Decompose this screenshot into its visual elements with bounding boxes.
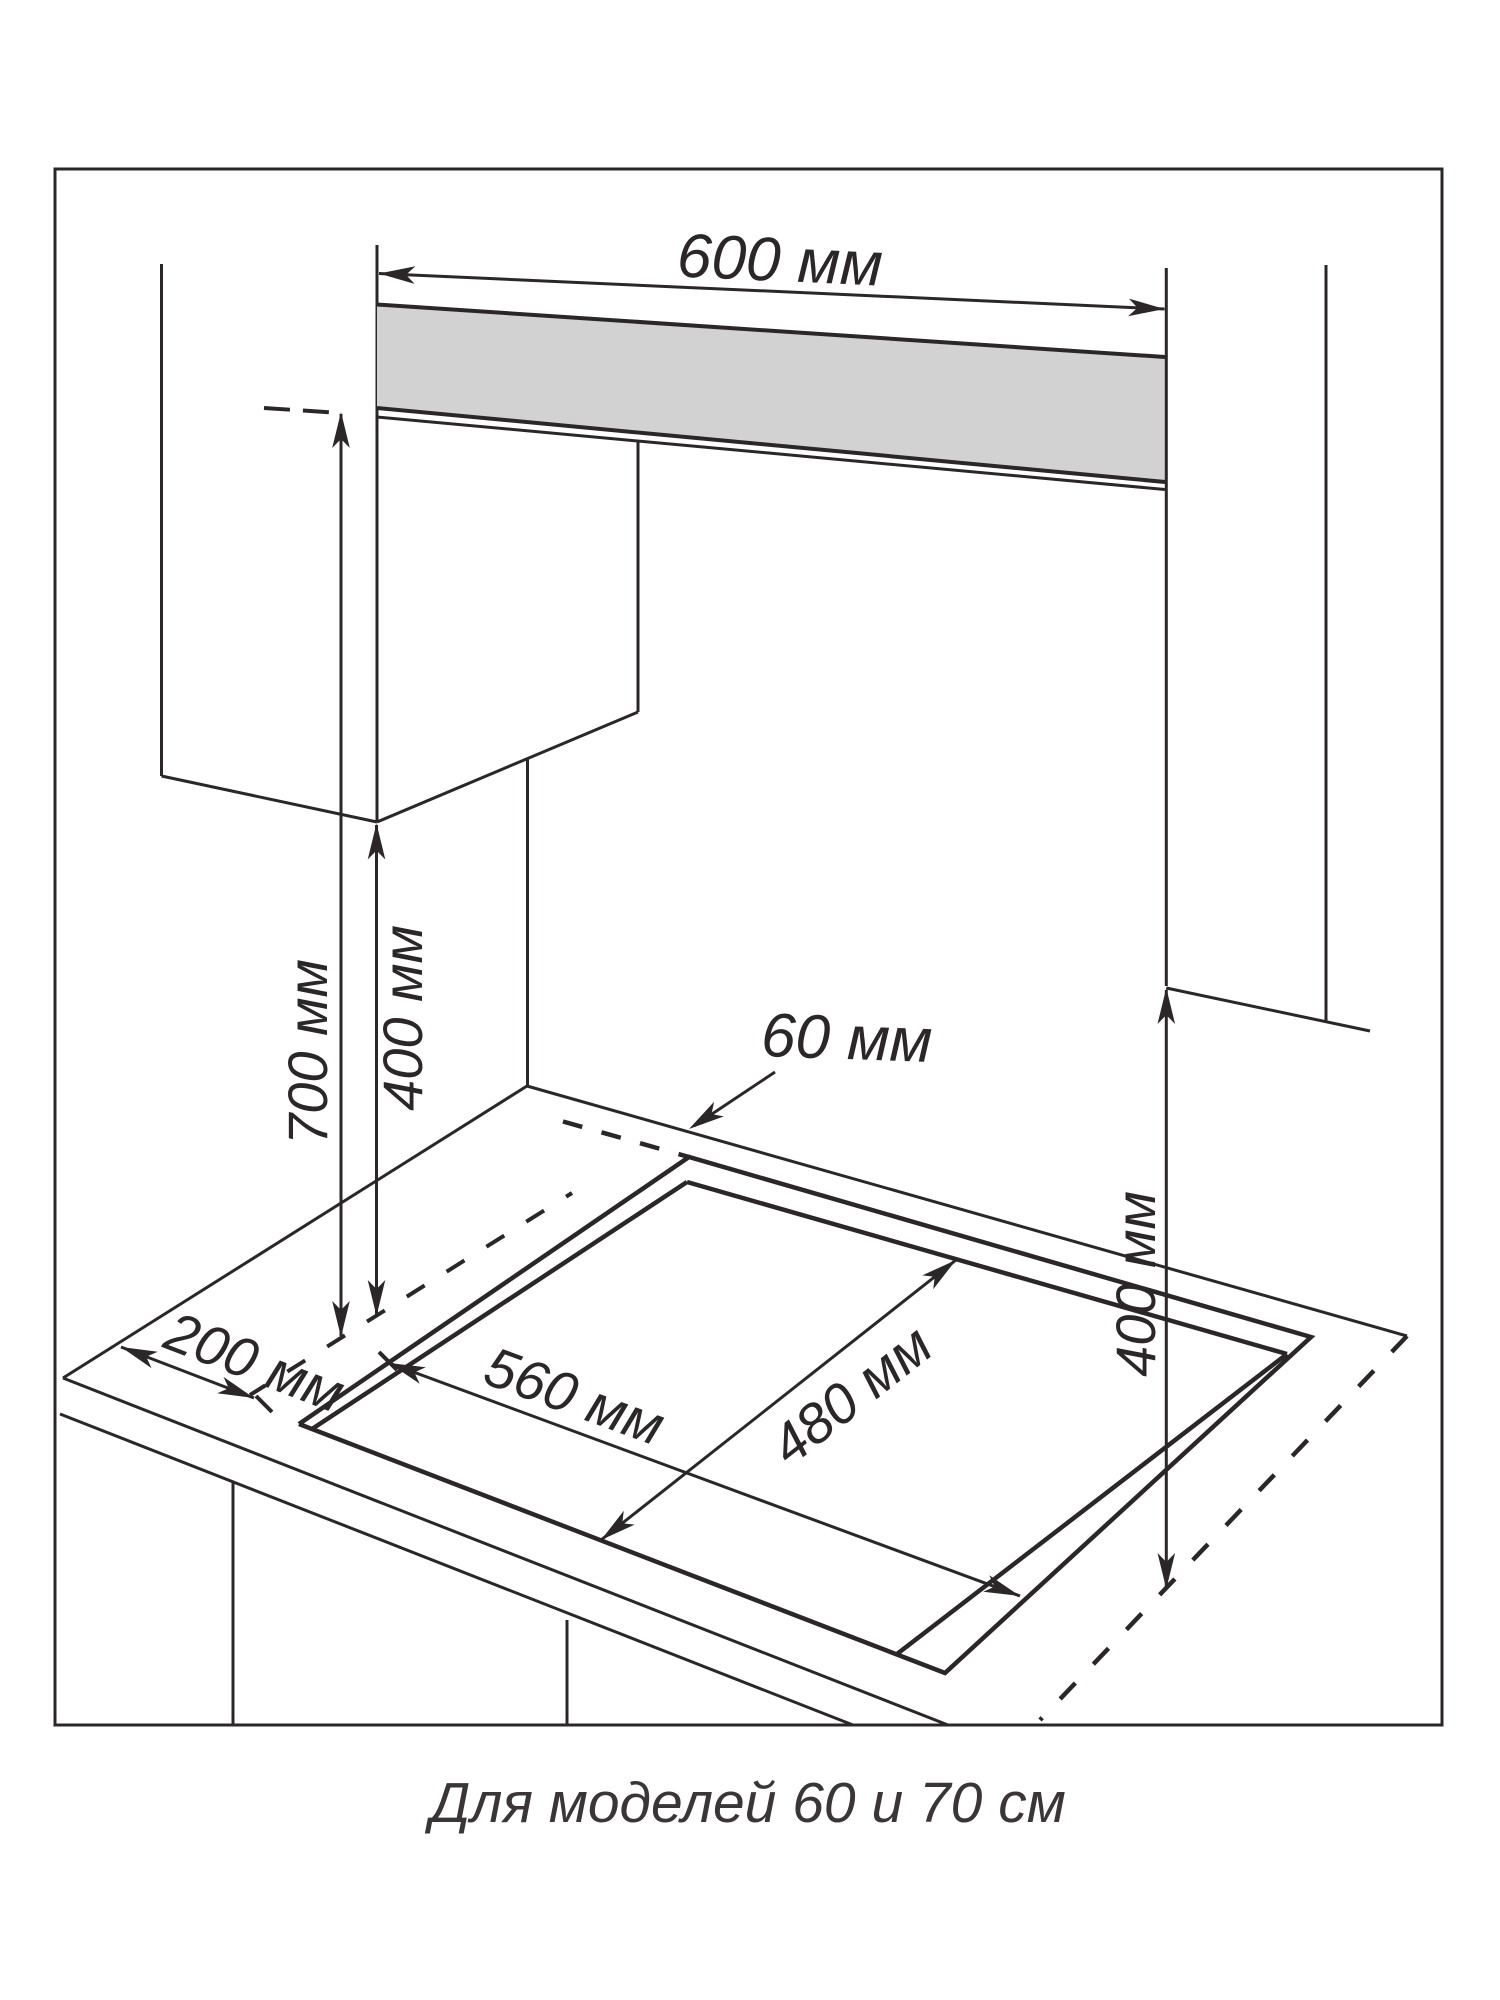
svg-text:400 мм: 400 мм	[371, 925, 434, 1111]
svg-text:600 мм: 600 мм	[676, 221, 885, 299]
svg-text:Для моделей 60 и 70 см: Для моделей 60 и 70 см	[424, 1771, 1066, 1835]
svg-text:700 мм: 700 мм	[276, 959, 339, 1145]
svg-text:400 мм: 400 мм	[1104, 1191, 1167, 1377]
svg-text:60 мм: 60 мм	[760, 1001, 934, 1076]
